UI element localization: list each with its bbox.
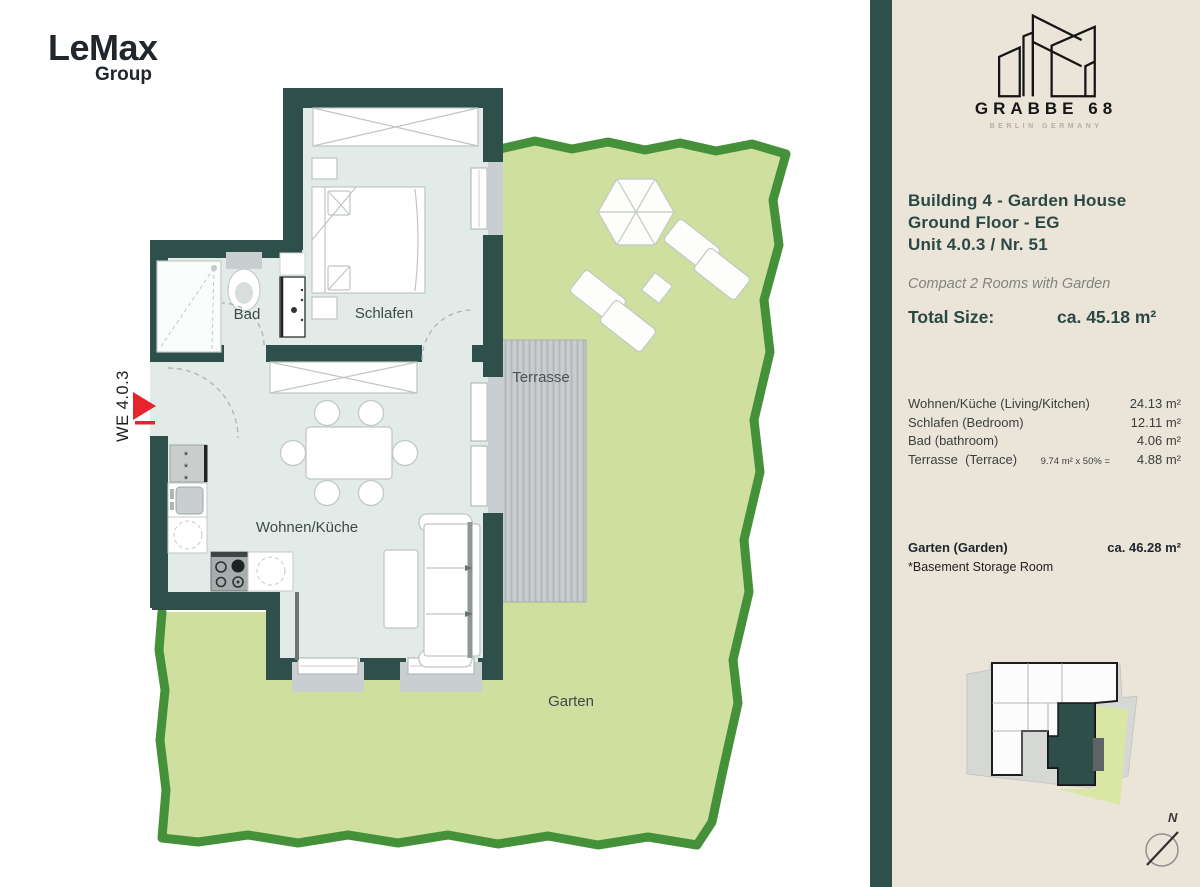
grabbe-logo-icon (989, 10, 1103, 100)
living-label: Wohnen/Küche (256, 519, 358, 536)
bedroom-label: Schlafen (355, 305, 413, 322)
building-line: Building 4 - Garden House (908, 190, 1182, 212)
wardrobe (270, 362, 417, 393)
terrace-area: Terrasse (498, 340, 586, 602)
bedroom-window (488, 162, 503, 235)
project-name: GRABBE 68 (892, 99, 1200, 119)
table-row: Garten (Garden) ca. 46.28 m² (908, 540, 1181, 555)
window-track (295, 592, 299, 660)
garden-row-value: ca. 46.28 m² (1107, 540, 1181, 555)
total-size-value: ca. 45.18 m² (1057, 307, 1156, 328)
svg-text:*: * (184, 450, 189, 462)
table-row: Terrasse (Terrace) 9.74 m² x 50% = 4.88 … (908, 452, 1181, 471)
panel-divider (870, 0, 892, 887)
unit-tag: WE 4.0.3 (114, 370, 132, 442)
bathroom-label: Bad (234, 306, 261, 323)
north-compass: N (1135, 806, 1191, 880)
sofa (419, 514, 480, 667)
basement-footnote: *Basement Storage Room (908, 560, 1181, 574)
washing-machine (280, 253, 305, 337)
entrance-marker: WE 4.0.3 (114, 370, 156, 442)
minimap-terrace (1093, 738, 1104, 771)
terrace-label: Terrasse (512, 369, 570, 386)
area-table: Wohnen/Küche (Living/Kitchen) 24.13 m² S… (908, 396, 1181, 470)
table-row: Schlafen (Bedroom) 12.11 m² (908, 415, 1181, 434)
total-size-label: Total Size: (908, 307, 994, 327)
nightstand (312, 297, 337, 319)
unit-subtitle: Compact 2 Rooms with Garden (908, 276, 1110, 292)
site-overview-map (962, 656, 1140, 808)
room-label: Terrasse (Terrace) (908, 452, 1041, 467)
room-value: 12.11 m² (1115, 415, 1181, 430)
room-note: 9.74 m² x 50% = (1041, 456, 1110, 467)
unit-line: Unit 4.0.3 / Nr. 51 (908, 234, 1182, 256)
total-size-row: Total Size: ca. 45.18 m² (908, 307, 1182, 328)
room-value: 24.13 m² (1115, 396, 1181, 411)
svg-text:*: * (184, 462, 189, 474)
room-value: 4.88 m² (1115, 452, 1181, 467)
garden-label: Garten (548, 693, 594, 710)
room-label: Schlafen (Bedroom) (908, 415, 1110, 430)
floor-plan: Terrasse (0, 0, 880, 887)
terrace-door (488, 377, 503, 513)
fridge-icon: * * * (170, 445, 208, 486)
wardrobe (313, 108, 478, 146)
floor-line: Ground Floor - EG (908, 212, 1182, 234)
info-panel: GRABBE 68 BERLIN GERMANY Building 4 - Ga… (892, 0, 1200, 887)
room-label: Bad (bathroom) (908, 433, 1110, 448)
nightstand (312, 158, 337, 179)
room-value: 4.06 m² (1115, 433, 1181, 448)
garden-summary: Garten (Garden) ca. 46.28 m² *Basement S… (908, 540, 1181, 574)
project-location: BERLIN GERMANY (892, 123, 1200, 130)
table-row: Wohnen/Küche (Living/Kitchen) 24.13 m² (908, 396, 1181, 415)
stove-icon (211, 552, 248, 591)
unit-headline: Building 4 - Garden House Ground Floor -… (908, 190, 1182, 256)
toilet (226, 252, 262, 311)
garden-row-label: Garten (Garden) (908, 540, 1107, 555)
kitchen-sink (176, 487, 203, 514)
room-label: Wohnen/Küche (Living/Kitchen) (908, 396, 1110, 411)
double-bed (312, 187, 425, 293)
coffee-table (384, 550, 418, 628)
table-row: Bad (bathroom) 4.06 m² (908, 433, 1181, 452)
north-label: N (1168, 810, 1178, 825)
